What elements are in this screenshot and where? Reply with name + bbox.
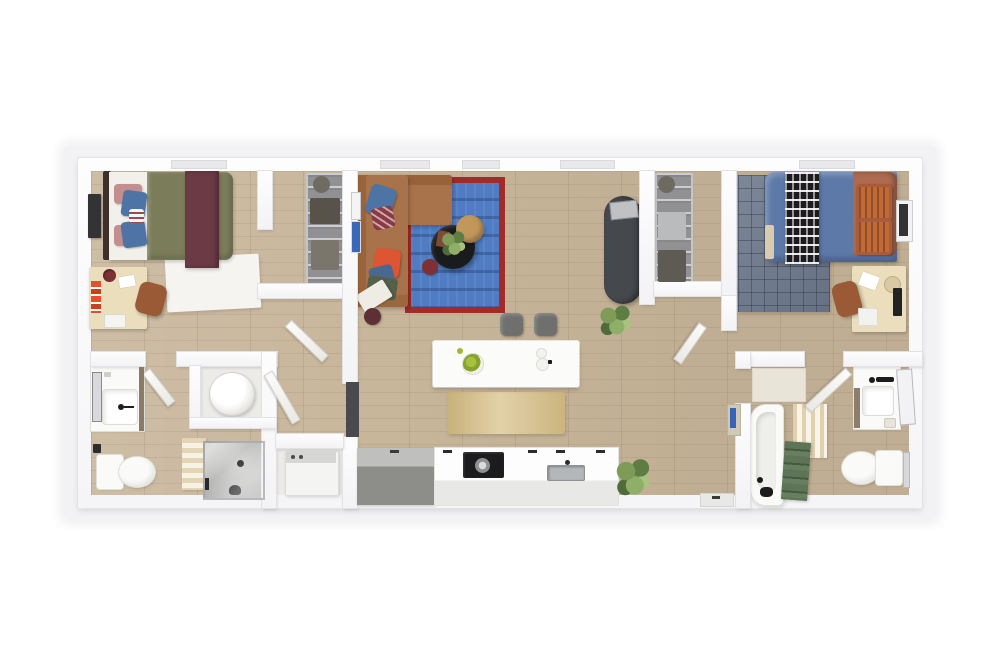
plant-by-fridge (597, 303, 635, 339)
bath1-vanity-wood-edge (139, 367, 144, 431)
pot-on-stove (475, 458, 490, 473)
sofa-pillow-maroon-striped (370, 205, 396, 231)
coffee-table-plant (440, 229, 468, 259)
bedroom1-desk-organizer (104, 314, 126, 328)
refrigerator-tray (609, 200, 639, 221)
bedroom2-desk-tray (858, 308, 878, 326)
bath1-soap (104, 372, 111, 377)
counter-gray-section (357, 448, 435, 505)
sink-faucet (565, 460, 570, 465)
bedroom1-desk-binders (91, 281, 101, 313)
bar-stool-left (500, 313, 523, 336)
bath2-faucet-dot (869, 377, 875, 383)
hall2-towel-blue (730, 408, 736, 428)
kitchen-sink (547, 465, 585, 481)
window-bedroom2 (799, 160, 855, 169)
bath1-faucet-spout (124, 406, 134, 408)
shower-door-handle (205, 478, 209, 490)
window-living-2 (462, 160, 500, 169)
window-living-3 (560, 160, 615, 169)
bath1-toilet-bowl (119, 457, 155, 487)
plant-kitchen-end (614, 455, 654, 501)
counter-handle-4 (596, 450, 605, 453)
counter-handle-3 (556, 450, 565, 453)
entry-door-mark (712, 496, 720, 499)
window-bedroom1 (171, 160, 227, 169)
leaning-art-frame-blue (351, 221, 361, 253)
closet1-bin-gray (311, 240, 339, 270)
kitchen-island (433, 341, 579, 387)
wall-whcloset-bottom (190, 418, 276, 428)
dark-cabinet-hall-wall (346, 382, 359, 437)
washer-knob-2 (299, 455, 303, 459)
floorplan-canvas (0, 0, 1000, 667)
bar-stool-right (534, 313, 557, 336)
bath2-soap (884, 418, 896, 428)
closet2-bin-dark (658, 250, 686, 282)
wall-living-right (640, 171, 654, 304)
shower-glass-door (203, 441, 265, 500)
counter-handle-5 (390, 450, 399, 453)
wall-bath2-left-upper (736, 352, 750, 368)
kitchen-runner-rug (447, 392, 565, 434)
closet2-bin-light (658, 212, 686, 240)
closet1-bin-dark (310, 198, 340, 224)
closet2-basket (658, 176, 675, 193)
bedroom2-monitor (893, 288, 902, 316)
bedroom1-wall-tv (88, 194, 101, 238)
leaning-art-frame-white (351, 192, 361, 220)
bed1-accent-pillow (129, 209, 144, 223)
fruit-bowl (462, 353, 484, 375)
bedroom2-wall-tv-screen (899, 204, 908, 236)
bedroom1-desk-cup (103, 269, 116, 282)
wall-utility-top (276, 434, 343, 448)
apple (457, 348, 463, 354)
bath2-towel-bar (903, 452, 910, 488)
bath2-toilet-tank (876, 451, 902, 485)
bath2-faucet-bar (876, 377, 894, 382)
bath2-linen-shelf (752, 368, 806, 402)
bath1-tp-holder (93, 444, 101, 453)
bed1-pillow-blue-bottom (120, 219, 147, 248)
wall-closet1-bottom (258, 284, 356, 298)
bed2-pillow-orange-top (856, 184, 892, 221)
pouf (422, 259, 438, 275)
bathtub-faucet-dot (757, 477, 763, 483)
bath1-leaning-mirror (92, 372, 102, 422)
wall-bed2-left-lower (722, 296, 736, 330)
bed2-pillow-orange-bottom (856, 219, 892, 255)
wall-bed1-bath1-a (91, 352, 145, 366)
bed2-patterned-throw (785, 172, 819, 264)
closet1-basket (313, 176, 330, 193)
bath2-sink (862, 386, 894, 416)
bath2-green-towels (781, 441, 811, 501)
wall-whcloset-left (190, 366, 200, 424)
counter-handle-1 (443, 450, 452, 453)
counter-handle-2 (528, 450, 537, 453)
bathtub-faucet (760, 487, 773, 497)
floor-stool-dark (364, 308, 381, 325)
wall-bed2-bath2-b (844, 352, 922, 366)
washer-knob-1 (291, 455, 295, 459)
wall-bed1-closet1 (258, 171, 272, 229)
bed2-sheet-fold (765, 225, 774, 259)
bath2-toilet-bowl (842, 452, 880, 484)
wall-closet2-bed2 (722, 171, 736, 296)
bath2-vanity-wood-edge (854, 388, 860, 428)
water-heater (209, 372, 255, 416)
wall-living-left-lower (343, 437, 357, 508)
bed1-throw-blanket (185, 171, 219, 268)
island-black-item (548, 360, 552, 364)
window-living-1 (380, 160, 430, 169)
